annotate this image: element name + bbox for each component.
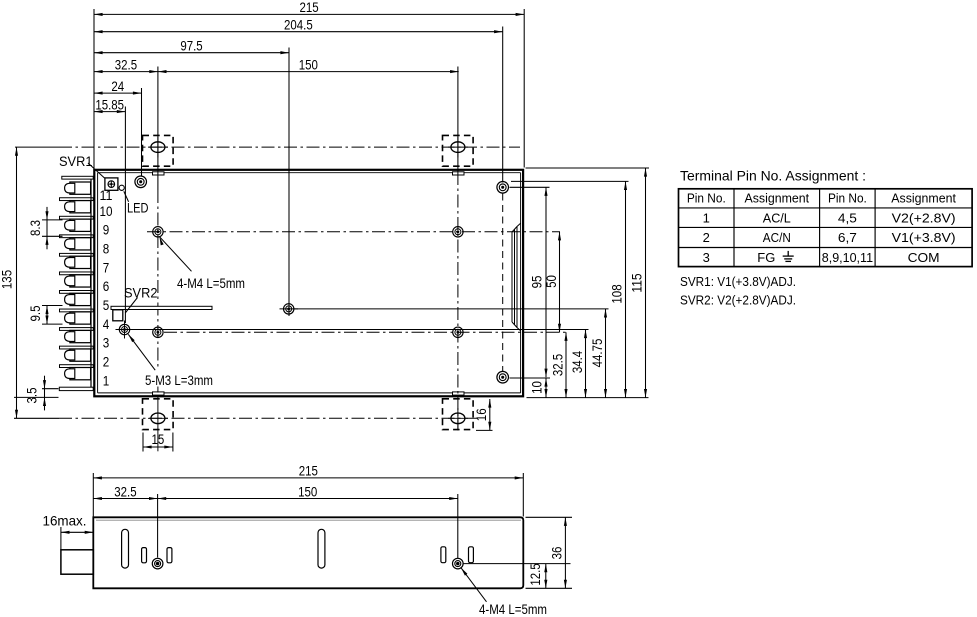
svg-text:24: 24 bbox=[111, 78, 124, 94]
svg-text:SVR2: SVR2 bbox=[124, 285, 158, 301]
svg-text:4: 4 bbox=[103, 316, 110, 332]
svg-text:11: 11 bbox=[100, 187, 113, 203]
svg-text:2: 2 bbox=[103, 354, 110, 370]
svg-text:3: 3 bbox=[703, 250, 710, 265]
svg-text:6,7: 6,7 bbox=[838, 230, 857, 245]
svg-text:15: 15 bbox=[152, 431, 165, 447]
svg-text:16max.: 16max. bbox=[43, 513, 87, 529]
svg-text:215: 215 bbox=[299, 463, 318, 479]
svg-text:LED: LED bbox=[127, 200, 149, 216]
svg-text:V2(+2.8V): V2(+2.8V) bbox=[892, 210, 956, 225]
svg-text:AC/L: AC/L bbox=[763, 210, 791, 225]
svg-text:Assignment: Assignment bbox=[891, 190, 956, 205]
svg-text:10: 10 bbox=[529, 381, 545, 394]
svg-text:9: 9 bbox=[103, 222, 110, 238]
svg-text:15.85: 15.85 bbox=[95, 96, 124, 112]
svg-text:115: 115 bbox=[629, 273, 645, 292]
svg-text:1: 1 bbox=[703, 210, 710, 225]
svg-text:32.5: 32.5 bbox=[114, 483, 136, 499]
svg-text:7: 7 bbox=[103, 259, 110, 275]
svg-text:COM: COM bbox=[908, 250, 940, 265]
svg-text:5-M3 L=3mm: 5-M3 L=3mm bbox=[145, 372, 213, 388]
svg-text:10: 10 bbox=[100, 203, 113, 219]
svg-text:36: 36 bbox=[549, 546, 565, 559]
svg-text:3.5: 3.5 bbox=[24, 387, 40, 403]
svg-text:AC/N: AC/N bbox=[763, 230, 791, 245]
svg-text:34.4: 34.4 bbox=[569, 351, 585, 373]
svg-text:4-M4 L=5mm: 4-M4 L=5mm bbox=[479, 601, 547, 617]
svg-text:44.75: 44.75 bbox=[589, 338, 605, 367]
svg-text:50: 50 bbox=[543, 275, 559, 288]
svg-text:8: 8 bbox=[103, 240, 110, 256]
svg-text:Pin No.: Pin No. bbox=[828, 190, 867, 205]
svg-text:32.5: 32.5 bbox=[115, 56, 137, 72]
svg-text:8,9,10,11: 8,9,10,11 bbox=[822, 250, 873, 265]
svg-text:4,5: 4,5 bbox=[838, 210, 857, 225]
svg-text:215: 215 bbox=[300, 0, 319, 15]
svg-text:8.3: 8.3 bbox=[27, 220, 43, 236]
svg-text:Terminal Pin No. Assignment :: Terminal Pin No. Assignment : bbox=[680, 168, 866, 184]
svg-text:97.5: 97.5 bbox=[180, 38, 202, 54]
svg-text:FG: FG bbox=[757, 250, 775, 265]
svg-text:5: 5 bbox=[103, 297, 110, 313]
svg-text:6: 6 bbox=[103, 278, 110, 294]
svg-text:204.5: 204.5 bbox=[284, 17, 313, 33]
svg-text:12.5: 12.5 bbox=[527, 563, 543, 585]
svg-text:9.5: 9.5 bbox=[27, 305, 43, 321]
svg-text:4-M4 L=5mm: 4-M4 L=5mm bbox=[177, 275, 245, 291]
svg-text:150: 150 bbox=[299, 56, 318, 72]
svg-text:V1(+3.8V): V1(+3.8V) bbox=[892, 230, 956, 245]
svg-text:SVR1: V1(+3.8V)ADJ.: SVR1: V1(+3.8V)ADJ. bbox=[680, 274, 796, 289]
svg-text:Pin No.: Pin No. bbox=[687, 190, 726, 205]
svg-text:16: 16 bbox=[473, 408, 489, 421]
svg-text:3: 3 bbox=[103, 335, 110, 351]
svg-text:1: 1 bbox=[103, 372, 110, 388]
svg-text:SVR2: V2(+2.8V)ADJ.: SVR2: V2(+2.8V)ADJ. bbox=[680, 293, 796, 308]
svg-text:135: 135 bbox=[0, 270, 15, 289]
svg-text:2: 2 bbox=[703, 230, 710, 245]
svg-text:32.5: 32.5 bbox=[550, 354, 566, 376]
svg-text:Assignment: Assignment bbox=[745, 190, 810, 205]
svg-text:SVR1: SVR1 bbox=[59, 153, 93, 169]
svg-text:150: 150 bbox=[298, 483, 317, 499]
svg-text:108: 108 bbox=[609, 284, 625, 303]
